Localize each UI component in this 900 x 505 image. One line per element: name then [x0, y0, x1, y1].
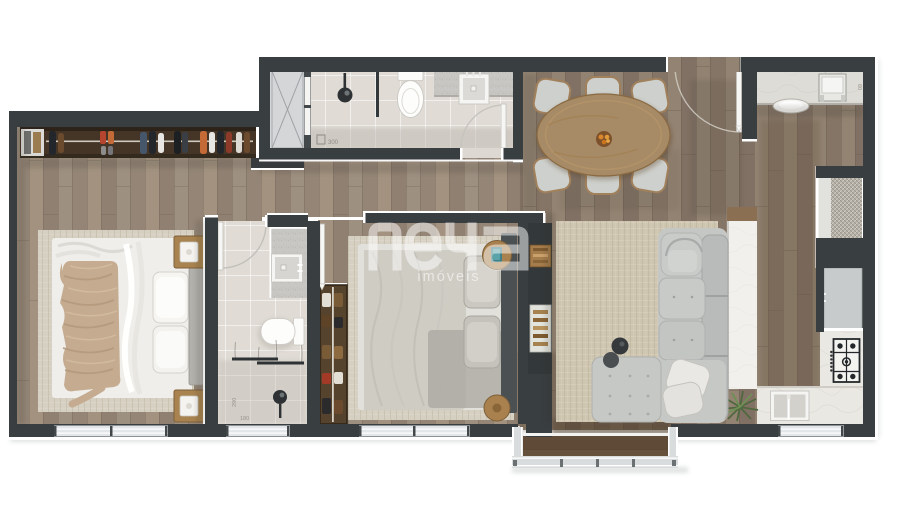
svg-text:300: 300: [328, 140, 339, 146]
svg-text:180: 180: [240, 416, 249, 422]
svg-text:290: 290: [232, 398, 238, 407]
svg-text:imóveis: imóveis: [417, 269, 480, 285]
svg-text:60: 60: [856, 84, 862, 90]
